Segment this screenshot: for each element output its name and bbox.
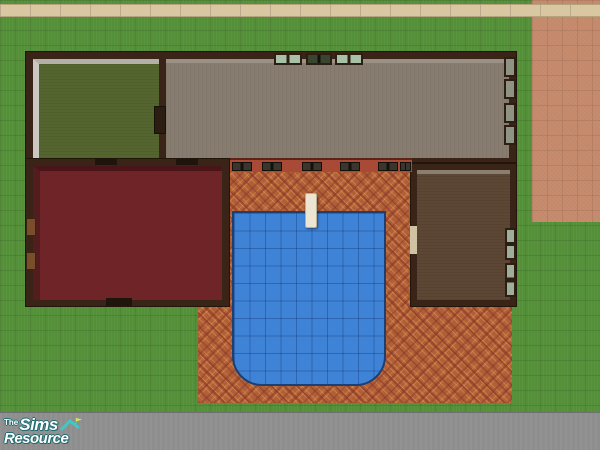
- brown-room-floor[interactable]: [417, 170, 510, 300]
- window[interactable]: [26, 252, 36, 270]
- patio-wall-window[interactable]: [378, 162, 398, 171]
- red-room-wall-object[interactable]: [106, 298, 132, 306]
- window[interactable]: [504, 57, 516, 77]
- window[interactable]: [335, 53, 363, 65]
- sidewalk: [0, 4, 600, 17]
- tsr-watermark: The Sims Resource: [4, 416, 84, 446]
- red-room-door[interactable]: [176, 158, 198, 165]
- street: [0, 412, 600, 450]
- green-room-door[interactable]: [154, 106, 166, 134]
- patio-wall: [230, 158, 412, 172]
- window[interactable]: [504, 103, 516, 123]
- patio-wall-window[interactable]: [302, 162, 322, 171]
- window[interactable]: [504, 125, 516, 145]
- patio-wall-window[interactable]: [232, 162, 252, 171]
- window[interactable]: [505, 228, 516, 260]
- watermark-suffix: Resource: [4, 431, 84, 446]
- window-dark[interactable]: [306, 53, 332, 65]
- tan-room-floor[interactable]: [166, 59, 509, 158]
- window[interactable]: [26, 218, 36, 236]
- red-room-door[interactable]: [95, 158, 117, 165]
- window[interactable]: [504, 79, 516, 99]
- lot-screenshot: The Sims Resource: [0, 0, 600, 450]
- window[interactable]: [505, 263, 516, 297]
- window[interactable]: [274, 53, 302, 65]
- diving-board[interactable]: [305, 193, 317, 228]
- swimming-pool[interactable]: [232, 211, 386, 386]
- dirt-path: [532, 0, 600, 222]
- brown-room-door[interactable]: [410, 226, 417, 254]
- patio-wall-window[interactable]: [262, 162, 282, 171]
- green-room-floor[interactable]: [33, 59, 159, 158]
- patio-wall-window[interactable]: [340, 162, 360, 171]
- red-room-floor[interactable]: [33, 166, 222, 300]
- patio-wall-window[interactable]: [400, 162, 411, 171]
